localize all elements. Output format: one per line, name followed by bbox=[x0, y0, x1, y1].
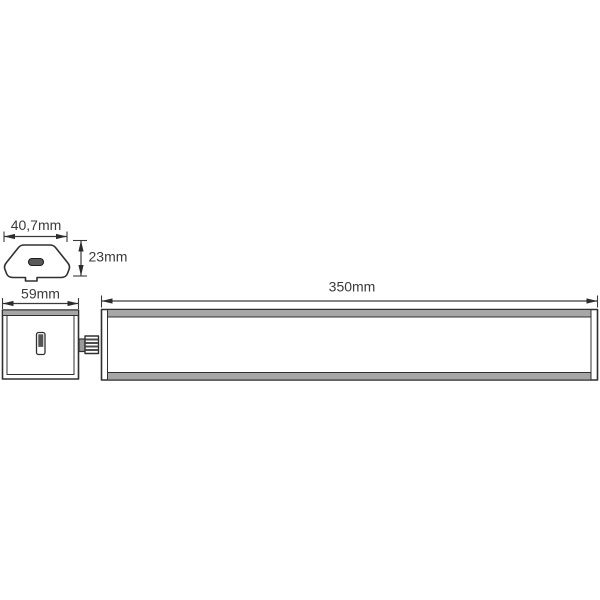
height-dimension-label: 23mm bbox=[89, 249, 128, 265]
cross-section-view: 40,7mm 23mm bbox=[4, 217, 127, 281]
arrowhead-right bbox=[56, 234, 67, 239]
power-switch-slider bbox=[38, 334, 43, 347]
dimension-drawing: 40,7mm 23mm bbox=[0, 0, 600, 600]
arrowhead-down bbox=[78, 265, 83, 276]
driver-box bbox=[3, 310, 79, 379]
arrowhead-up bbox=[78, 241, 83, 252]
front-view: 59mm bbox=[3, 279, 598, 381]
driver-width-dimension: 59mm bbox=[3, 286, 79, 310]
width-dimension-label: 40,7mm bbox=[11, 217, 62, 233]
arrowhead-right bbox=[587, 298, 598, 303]
profile-length-dimension: 350mm bbox=[102, 279, 598, 308]
profile-bar bbox=[102, 310, 598, 381]
profile-bottom-flange bbox=[108, 373, 592, 381]
connector-plug bbox=[79, 336, 99, 354]
profile-length-dimension-label: 350mm bbox=[329, 279, 376, 295]
arrowhead-left bbox=[4, 234, 15, 239]
connector-neck bbox=[79, 339, 85, 352]
driver-width-dimension-label: 59mm bbox=[21, 286, 60, 302]
arrowhead-right bbox=[68, 301, 79, 306]
height-dimension: 23mm bbox=[73, 241, 127, 277]
driver-box-top-band bbox=[3, 310, 79, 316]
drawing-canvas: 40,7mm 23mm bbox=[0, 0, 600, 600]
cross-section-led-slot bbox=[29, 259, 44, 266]
profile-top-flange bbox=[108, 310, 592, 318]
arrowhead-left bbox=[102, 298, 113, 303]
width-dimension: 40,7mm bbox=[4, 217, 67, 242]
profile-bar-outline bbox=[102, 310, 598, 381]
arrowhead-left bbox=[3, 301, 14, 306]
